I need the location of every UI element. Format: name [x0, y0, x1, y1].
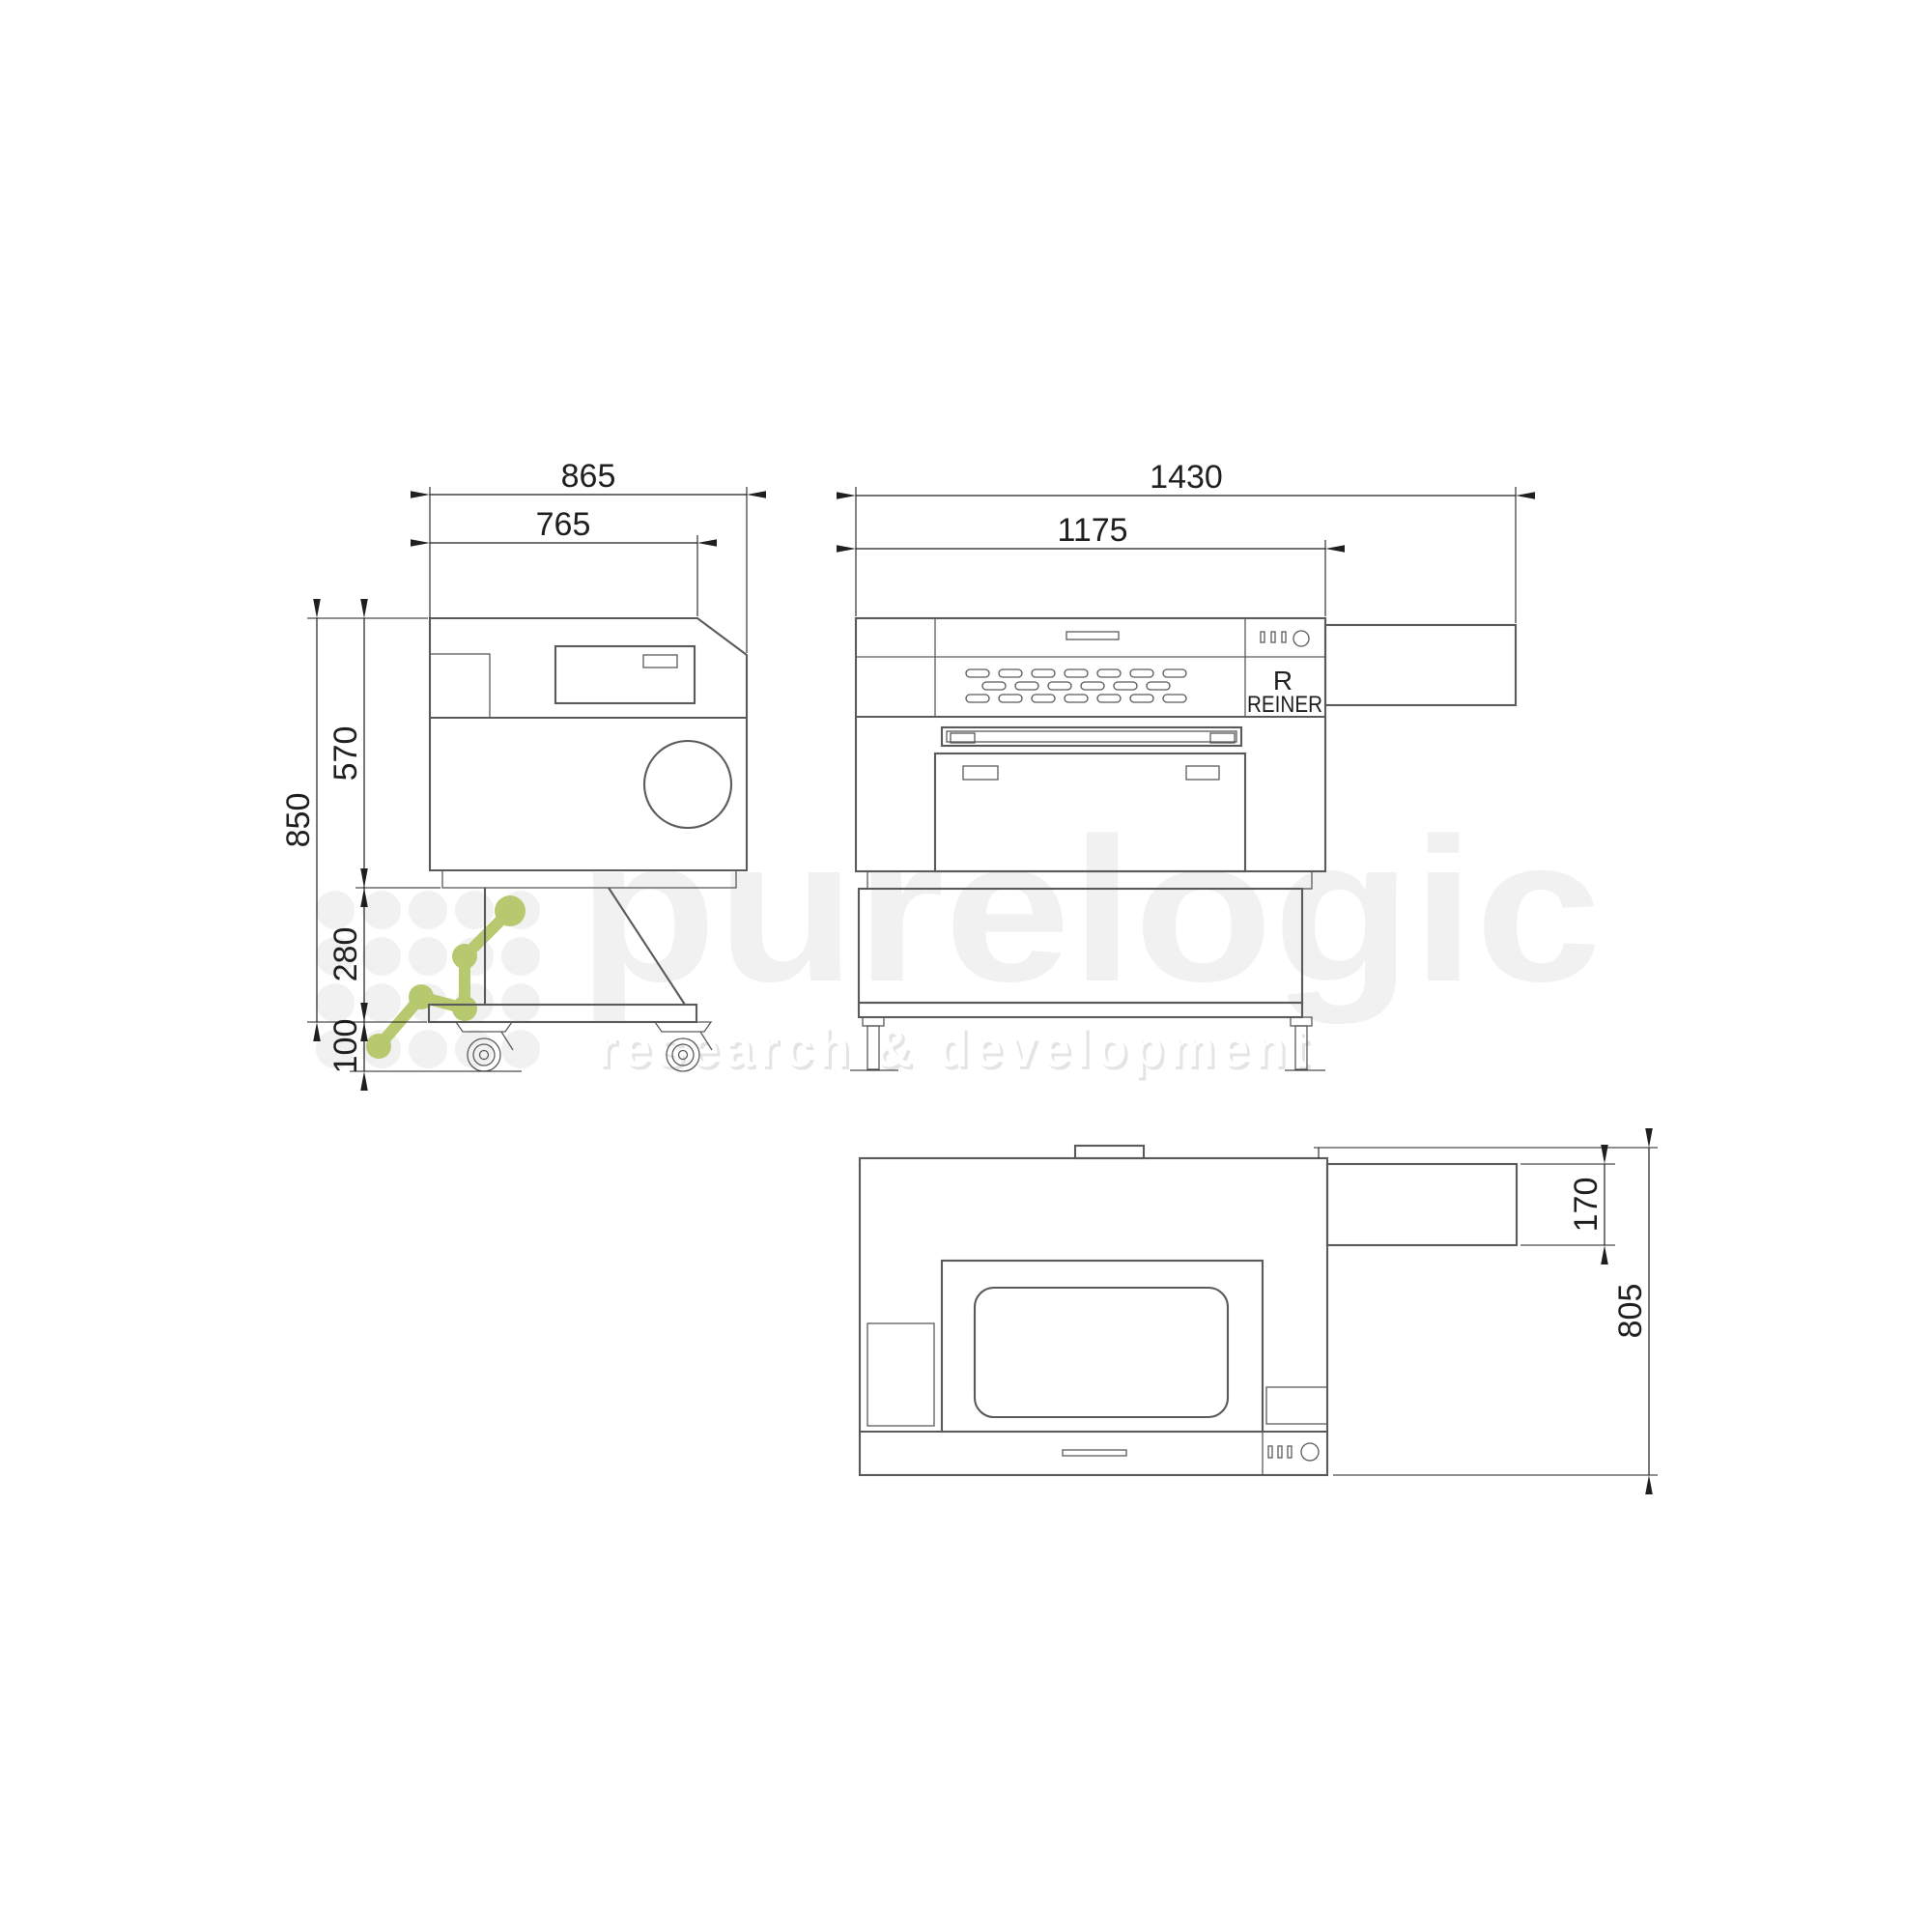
front-control-cluster	[1261, 631, 1309, 646]
technical-drawing: purelogic research & development researc…	[0, 0, 1932, 1932]
top-lid-outline	[942, 1261, 1263, 1432]
top-exhaust-flange	[1075, 1146, 1144, 1158]
side-top-left-box	[430, 654, 490, 718]
top-exhaust-duct	[1327, 1164, 1517, 1245]
brand-name: REINER	[1247, 692, 1322, 718]
top-front-slot	[1063, 1450, 1126, 1456]
front-power-button	[1293, 631, 1309, 646]
watermark: purelogic research & development researc…	[316, 795, 1602, 1081]
dim-side-total-height: 850	[280, 793, 317, 848]
front-door-handle-left	[963, 766, 998, 780]
top-control-cluster	[1268, 1443, 1319, 1461]
front-top-slot	[1066, 632, 1119, 639]
dim-side-stand-height: 280	[327, 927, 364, 982]
top-lid-window	[975, 1288, 1228, 1417]
front-vent-grille	[966, 669, 1186, 702]
dimensions-top: 170 805	[1314, 1148, 1658, 1475]
dimensions-front: 1430 1175	[856, 459, 1516, 623]
dim-front-body-width: 1175	[1057, 512, 1127, 549]
top-left-panel	[867, 1323, 934, 1426]
top-body-outline	[860, 1158, 1327, 1475]
dim-top-duct-depth: 170	[1568, 1178, 1605, 1233]
dim-side-total-width: 865	[561, 458, 616, 495]
dim-side-body-height: 570	[327, 726, 364, 781]
dim-top-total-depth: 805	[1612, 1284, 1649, 1339]
watermark-tagline-text: research & development	[597, 1017, 1314, 1078]
drawing-page: purelogic research & development researc…	[0, 0, 1932, 1932]
dim-front-total-width: 1430	[1150, 459, 1223, 496]
top-view	[860, 1146, 1517, 1475]
top-power-button	[1301, 1443, 1319, 1461]
side-rear-panel-slot	[643, 655, 677, 668]
front-door-handle-right	[1186, 766, 1219, 780]
front-lid-strip	[942, 727, 1241, 746]
front-exhaust-duct	[1325, 625, 1516, 705]
top-right-panel	[1266, 1387, 1327, 1424]
dim-side-caster-height: 100	[327, 1019, 364, 1074]
watermark-brand-text: purelogic	[578, 795, 1602, 1024]
dim-side-top-width: 765	[536, 506, 591, 543]
